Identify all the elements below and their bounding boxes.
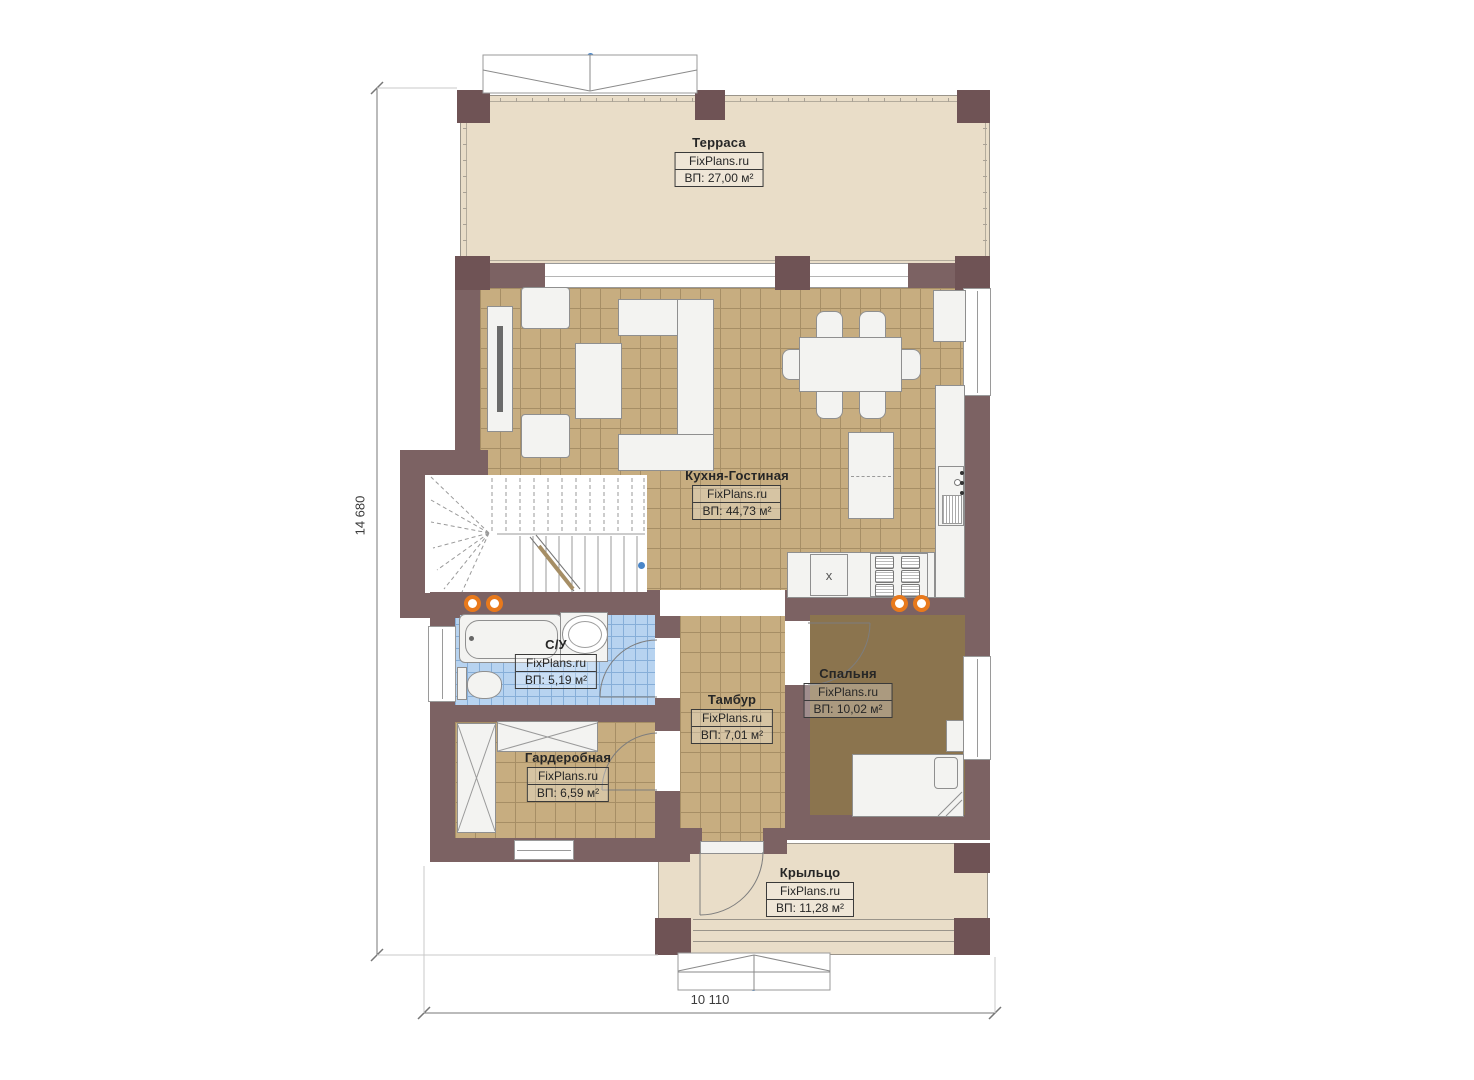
- brand-watermark: FixPlans.ru: [528, 768, 608, 785]
- window-bedroom-right: [963, 656, 991, 760]
- kitchen-sink: [938, 466, 964, 526]
- room-area: ВП: 5,19 м²: [516, 672, 596, 688]
- door-gap-wardrobe: [655, 731, 680, 791]
- terrace-pillar-top-mid: [695, 90, 725, 120]
- coffee-table: [575, 343, 622, 419]
- brand-watermark: FixPlans.ru: [805, 684, 892, 701]
- wall-sconce: [891, 595, 908, 612]
- room-tag: FixPlans.ru ВП: 7,01 м²: [691, 709, 773, 744]
- room-label-wardrobe: Гардеробная FixPlans.ru ВП: 6,59 м²: [525, 750, 611, 802]
- wall-sconce: [464, 595, 481, 612]
- armchair: [521, 414, 570, 458]
- room-tag: FixPlans.ru ВП: 27,00 м²: [675, 152, 764, 187]
- pillow: [934, 757, 958, 789]
- room-area: ВП: 44,73 м²: [694, 503, 781, 519]
- room-area: ВП: 7,01 м²: [692, 727, 772, 743]
- room-name: Кухня-Гостиная: [685, 468, 789, 483]
- room-area: ВП: 6,59 м²: [528, 785, 608, 801]
- floor-plan: x: [0, 0, 1474, 1080]
- room-tag: FixPlans.ru ВП: 11,28 м²: [766, 882, 854, 917]
- terrace-pillar-bottom-right: [955, 256, 990, 290]
- sofa-section-bottom: [618, 434, 714, 471]
- porch-pillar-bottom-left: [655, 918, 691, 955]
- kitchen-island: [848, 432, 894, 519]
- brand-watermark: FixPlans.ru: [694, 486, 781, 503]
- wall-bedroom-bottom: [785, 815, 990, 840]
- nightstand: [946, 720, 964, 752]
- terrace-pillar-bottom-mid: [775, 256, 810, 290]
- room-tag: FixPlans.ru ВП: 6,59 м²: [527, 767, 609, 802]
- brand-watermark: FixPlans.ru: [692, 710, 772, 727]
- burner: [875, 570, 894, 583]
- room-area: ВП: 27,00 м²: [676, 170, 763, 186]
- sink-knob: [960, 491, 964, 495]
- window-wardrobe-bottom: [514, 840, 574, 860]
- room-name: Спальня: [804, 666, 893, 681]
- wall-sconce: [913, 595, 930, 612]
- terrace-window: [810, 263, 908, 288]
- room-label-tambour: Тамбур FixPlans.ru ВП: 7,01 м²: [691, 692, 773, 744]
- room-area: ВП: 11,28 м²: [767, 900, 853, 916]
- terrace-pillar-top-left: [457, 90, 490, 123]
- opening-kitchen-tambour: [660, 590, 785, 616]
- wall-left-upper: [455, 263, 480, 475]
- bathtub-drain: [469, 636, 474, 641]
- room-name: С/У: [515, 637, 597, 652]
- room-name: Терраса: [675, 135, 764, 150]
- terrace-pillar-bottom-left: [455, 256, 490, 290]
- room-name: Тамбур: [691, 692, 773, 707]
- brand-watermark: FixPlans.ru: [516, 655, 596, 672]
- terrace-sliding-door: [545, 263, 775, 288]
- wardrobe-cabinet-left: [457, 723, 496, 833]
- room-tag: FixPlans.ru ВП: 44,73 м²: [693, 485, 782, 520]
- cooktop: [870, 553, 928, 597]
- burner: [875, 584, 894, 597]
- sink-knob: [960, 481, 964, 485]
- room-label-terrace: Терраса FixPlans.ru ВП: 27,00 м²: [675, 135, 764, 187]
- room-name: Гардеробная: [525, 750, 611, 765]
- dining-table: [799, 337, 902, 392]
- porch-step-line: [693, 919, 955, 920]
- dimension-height: 14 680: [353, 486, 368, 546]
- wall-bath-wardrobe: [430, 705, 680, 722]
- terrace-pillar-top-right: [957, 90, 990, 123]
- tall-cabinet-fridge: [933, 290, 966, 342]
- burner: [901, 570, 920, 583]
- roof-ridge-marker: [749, 983, 758, 992]
- burner: [901, 556, 920, 569]
- entrance-door-leaf: [700, 841, 764, 854]
- wall-porch-door-stub-right: [763, 828, 787, 854]
- sink-drainboard: [942, 495, 962, 524]
- porch-pillar-top-right: [954, 843, 990, 873]
- wall-porch-door-stub-left: [680, 828, 702, 854]
- terrace-railing-balusters-left: [463, 103, 467, 257]
- wardrobe-cabinet-top: [497, 721, 598, 752]
- porch-step-line: [693, 930, 955, 931]
- staircase-area: [425, 475, 647, 592]
- wall-sconce: [486, 595, 503, 612]
- room-area: ВП: 10,02 м²: [805, 701, 892, 717]
- terrace-railing-balusters-top: [468, 98, 982, 102]
- window-living-right: [963, 288, 991, 396]
- armchair: [521, 287, 570, 329]
- brand-watermark: FixPlans.ru: [767, 883, 853, 900]
- sink-knob: [960, 471, 964, 475]
- room-tag: FixPlans.ru ВП: 10,02 м²: [804, 683, 893, 718]
- appliance-marker-box: x: [810, 554, 848, 596]
- window-bathroom-left: [428, 626, 456, 702]
- room-label-porch: Крыльцо FixPlans.ru ВП: 11,28 м²: [766, 865, 854, 917]
- room-label-bathroom: С/У FixPlans.ru ВП: 5,19 м²: [515, 637, 597, 689]
- roof-ridge-marker: [586, 52, 595, 61]
- dimension-width: 10 110: [660, 992, 760, 1007]
- toilet-tank: [457, 667, 467, 700]
- door-gap-bathroom: [655, 638, 680, 698]
- porch-pillar-bottom-right: [954, 918, 990, 955]
- tv: [497, 326, 503, 412]
- toilet-bowl: [467, 671, 502, 699]
- brand-watermark: FixPlans.ru: [676, 153, 763, 170]
- room-label-bedroom: Спальня FixPlans.ru ВП: 10,02 м²: [804, 666, 893, 718]
- stair-marker: [637, 561, 646, 570]
- room-name: Крыльцо: [766, 865, 854, 880]
- terrace-railing-balusters-right: [983, 103, 987, 257]
- room-label-kitchen-living: Кухня-Гостиная FixPlans.ru ВП: 44,73 м²: [685, 468, 789, 520]
- porch-step-line: [693, 941, 955, 942]
- room-tag: FixPlans.ru ВП: 5,19 м²: [515, 654, 597, 689]
- island-divider: [851, 476, 891, 477]
- burner: [875, 556, 894, 569]
- appliance-marker: x: [826, 568, 833, 583]
